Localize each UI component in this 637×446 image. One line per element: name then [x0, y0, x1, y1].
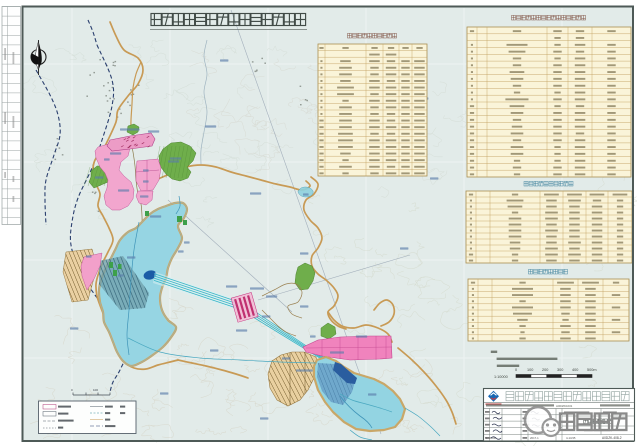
svg-text:300: 300 — [557, 368, 563, 372]
svg-text:400: 400 — [572, 368, 578, 372]
svg-text:2017-1: 2017-1 — [530, 436, 539, 440]
svg-text:A0DZK0231: A0DZK0231 — [556, 404, 573, 408]
svg-text:500m: 500m — [587, 368, 597, 372]
svg-text:200: 200 — [542, 368, 548, 372]
svg-text:100: 100 — [93, 388, 98, 392]
svg-text:0: 0 — [515, 368, 517, 372]
svg-text:4-13/45: 4-13/45 — [566, 436, 576, 440]
svg-text:A0DZK-408-2: A0DZK-408-2 — [602, 436, 622, 440]
svg-text:1:10000: 1:10000 — [494, 375, 508, 379]
svg-text:100: 100 — [527, 368, 533, 372]
